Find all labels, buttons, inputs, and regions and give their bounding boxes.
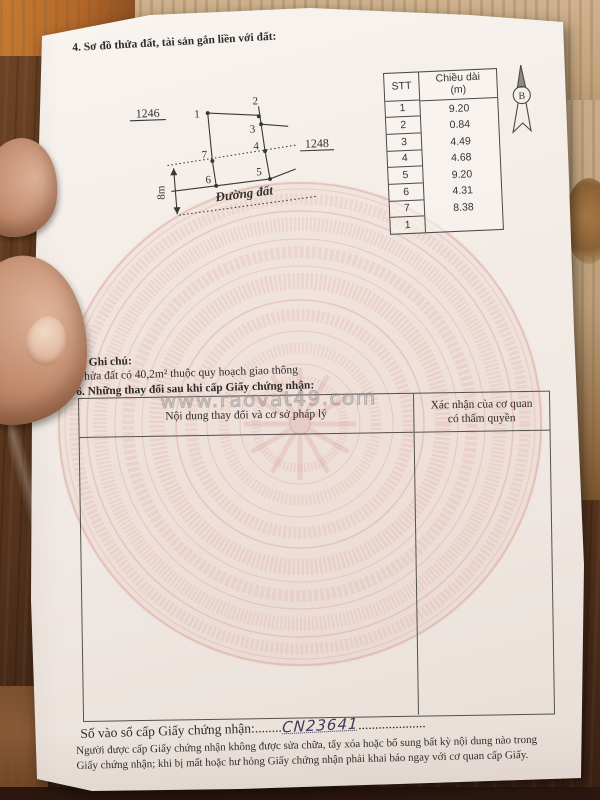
photo-of-land-certificate: 4. Sơ đồ thửa đất, tài sản gắn liền với … [0, 0, 600, 800]
point-label-7: 7 [201, 149, 207, 161]
changes-confirmation-header: Xác nhận của cơ quan có thẩm quyền [414, 392, 550, 432]
dimension-table-length-column: Chiều dài (m) 9.20 0.84 4.49 4.68 9.20 4… [419, 69, 503, 232]
length-values: 9.20 0.84 4.49 4.68 9.20 4.31 8.38 [420, 98, 503, 232]
road-label: Đường đất [214, 182, 275, 204]
plot-diagram: 1246 1248 1 2 3 4 5 6 7 Đường đất 8m [95, 87, 340, 230]
compass-letter: B [518, 91, 525, 102]
road-width-label: 8m [155, 185, 167, 200]
point-label-2: 2 [252, 95, 258, 107]
stt-cell: 7 [390, 200, 425, 218]
changes-table-body [80, 431, 554, 720]
point-label-4: 4 [253, 140, 259, 152]
length-value: 8.38 [425, 198, 503, 215]
length-value: 4.49 [422, 133, 500, 150]
point-label-1: 1 [194, 108, 200, 120]
watermark-text: www.raovat49.com [160, 385, 377, 413]
stt-cell: 1 [390, 217, 425, 234]
length-header: Chiều dài (m) [419, 69, 497, 101]
north-arrow-icon: B [502, 61, 545, 140]
stt-cell: 2 [386, 117, 421, 135]
changes-content-cell [80, 433, 419, 720]
point-label-3: 3 [250, 123, 256, 135]
point-label-6: 6 [205, 174, 211, 186]
dimension-table: STT 1 2 3 4 5 6 7 1 Chiều dài (m) [383, 68, 504, 235]
length-value: 9.20 [420, 100, 498, 117]
registry-dots-before: ........ [255, 720, 282, 736]
point-label-5: 5 [256, 166, 262, 178]
stt-cell: 3 [387, 133, 422, 151]
registry-label: Số vào sổ cấp Giấy chứng nhận: [80, 721, 255, 741]
stt-header: STT [384, 72, 419, 101]
length-value: 9.20 [423, 165, 501, 182]
section4-title: 4. Sơ đồ thửa đất, tài sản gắn liền với … [72, 31, 277, 54]
parcel-number-left: 1246 [135, 106, 159, 121]
stt-cell: 6 [389, 183, 424, 201]
document-sheet-wrapper: 4. Sơ đồ thửa đất, tài sản gắn liền với … [0, 0, 600, 800]
length-value: 0.84 [421, 116, 499, 133]
stt-cell: 1 [385, 100, 420, 118]
length-value: 4.31 [424, 182, 502, 199]
changes-table: Nội dung thay đổi và cơ sở pháp lý Xác n… [78, 391, 555, 722]
registry-dots-after: .................... [358, 715, 426, 732]
parcel-number-right: 1248 [305, 136, 329, 151]
registry-number-handwritten: CN23641 [281, 715, 358, 737]
certificate-page: 4. Sơ đồ thửa đất, tài sản gắn liền với … [0, 0, 600, 800]
stt-cell: 4 [387, 150, 422, 168]
changes-confirmation-cell [414, 431, 554, 715]
length-value: 4.68 [422, 149, 500, 166]
stt-cell: 5 [388, 167, 423, 185]
